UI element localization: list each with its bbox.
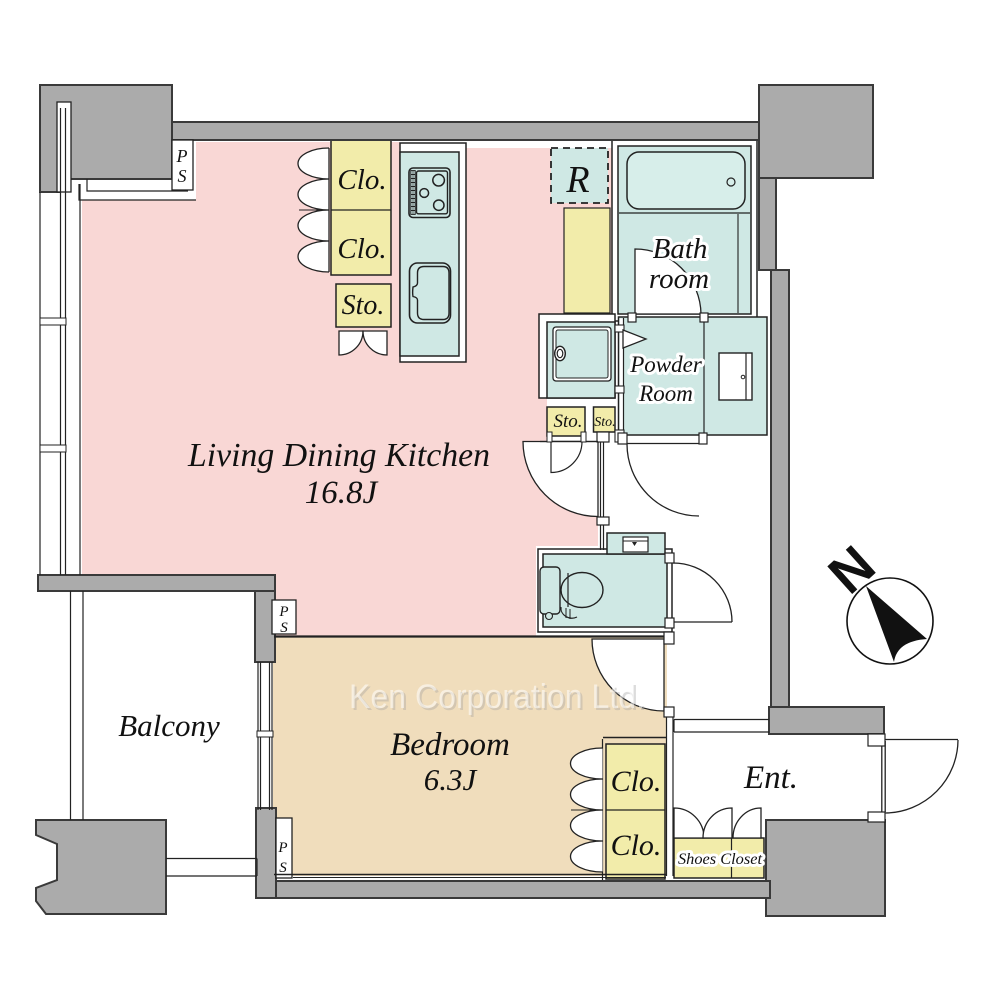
svg-text:Powder: Powder [629, 352, 703, 377]
svg-text:S: S [279, 860, 287, 876]
svg-text:room: room [649, 263, 709, 295]
svg-text:16.8J: 16.8J [305, 475, 379, 511]
svg-text:Bedroom: Bedroom [390, 727, 510, 763]
svg-text:Clo.: Clo. [337, 233, 386, 265]
svg-text:Clo.: Clo. [337, 164, 386, 196]
svg-text:Balcony: Balcony [118, 708, 220, 743]
svg-text:P: P [278, 604, 288, 620]
svg-text:P: P [176, 146, 188, 166]
svg-text:Ent.: Ent. [743, 760, 798, 796]
svg-text:Room: Room [638, 381, 693, 406]
svg-text:S: S [280, 620, 288, 636]
svg-text:Bath: Bath [653, 233, 708, 265]
svg-text:Sto.: Sto. [342, 290, 385, 321]
svg-text:Clo.: Clo. [611, 829, 662, 862]
svg-text:Shoes Closet: Shoes Closet [678, 851, 763, 868]
svg-text:R: R [565, 159, 589, 201]
svg-text:Ken Corporation Ltd.: Ken Corporation Ltd. [349, 678, 645, 716]
svg-text:S: S [178, 166, 187, 186]
svg-text:Clo.: Clo. [611, 765, 662, 798]
svg-text:P: P [277, 840, 287, 856]
svg-text:Sto.: Sto. [553, 411, 582, 432]
svg-text:Sto.: Sto. [594, 415, 615, 430]
svg-text:6.3J: 6.3J [424, 762, 478, 797]
svg-text:Living Dining Kitchen: Living Dining Kitchen [187, 437, 490, 474]
